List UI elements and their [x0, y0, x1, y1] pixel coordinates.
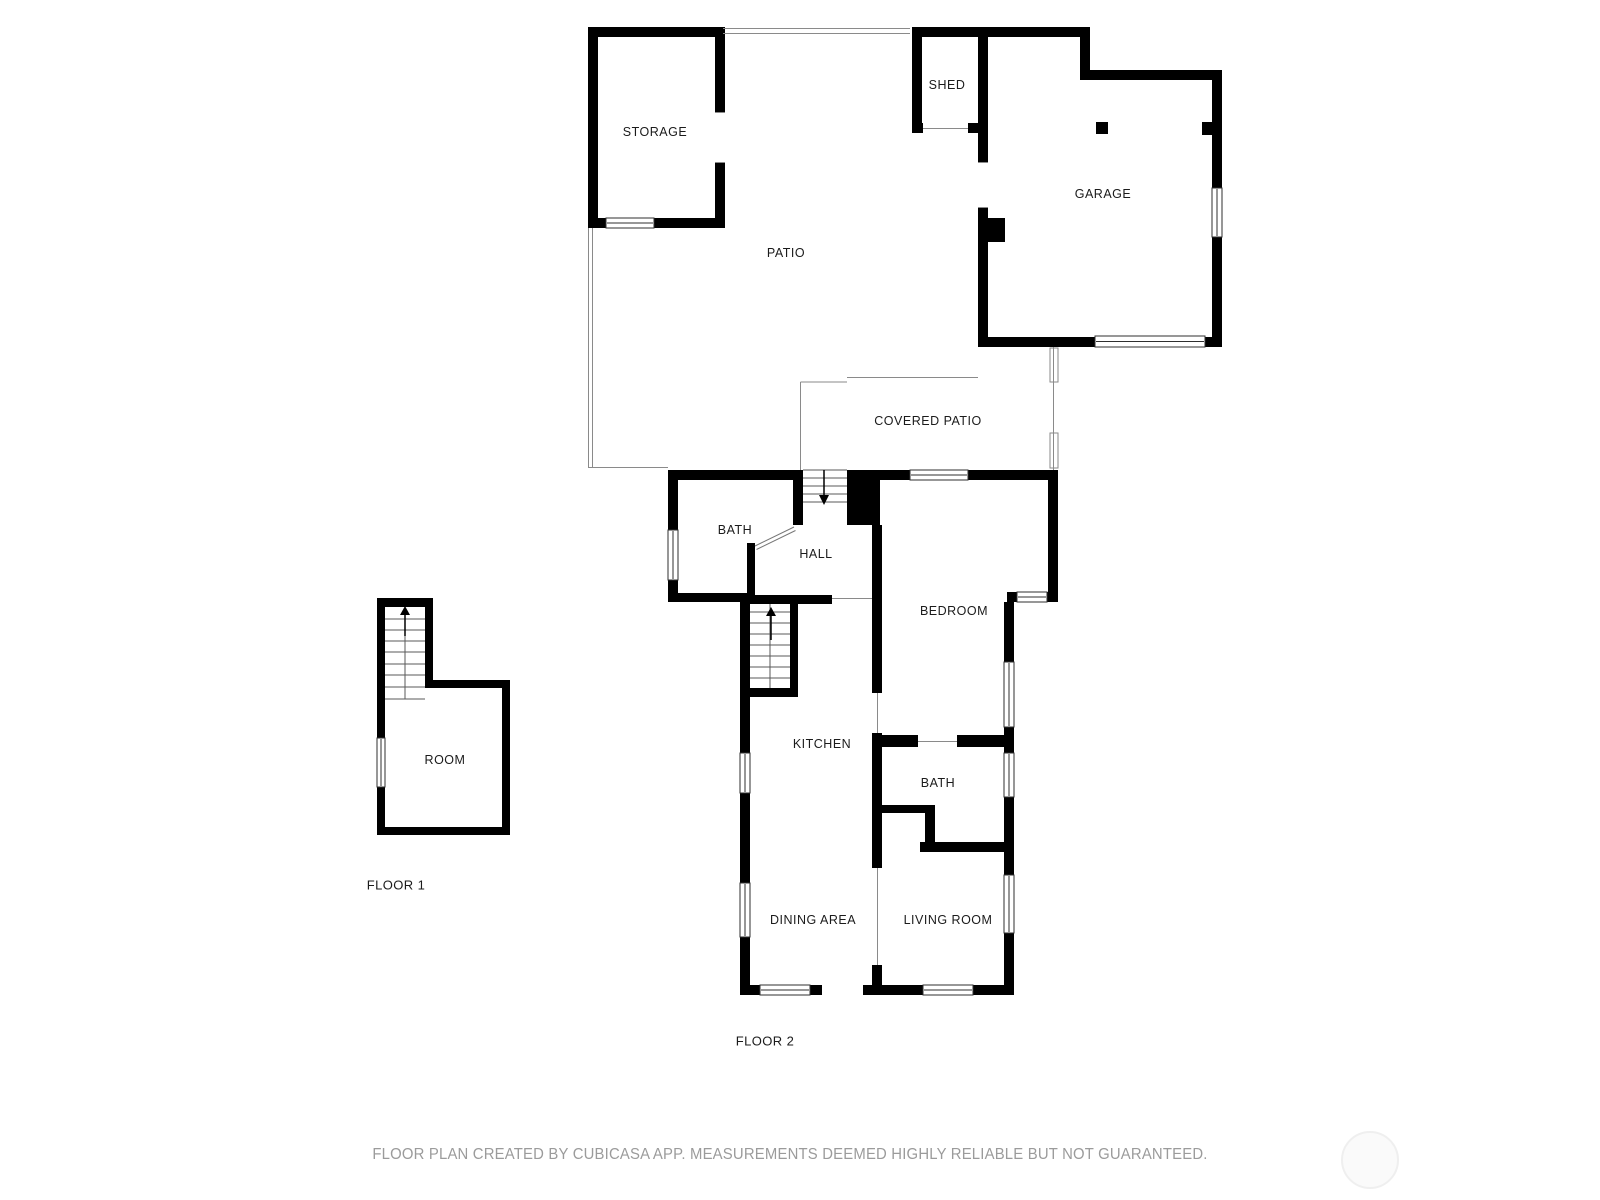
room-label-garage: GARAGE [1075, 187, 1132, 201]
room-label-bedroom: BEDROOM [920, 604, 988, 618]
room-label-bath-upper: BATH [718, 523, 752, 537]
bath-door-swing [755, 527, 796, 550]
floor1-staircase [385, 606, 425, 699]
room-label-kitchen: KITCHEN [793, 737, 851, 751]
room-label-storage: STORAGE [623, 125, 687, 139]
stairs-up-arrow-icon [400, 606, 410, 615]
room-label-patio: PATIO [767, 246, 805, 260]
disclaimer-text: FLOOR PLAN CREATED BY CUBICASA APP. MEAS… [55, 1146, 1524, 1164]
floor1-walls [377, 598, 510, 835]
room-label-shed: SHED [929, 78, 966, 92]
room-label-covered-patio: COVERED PATIO [874, 414, 981, 428]
room-label-hall: HALL [799, 547, 832, 561]
floor-plan-page: STORAGE SHED GARAGE PATIO COVERED PATIO … [0, 0, 1600, 1200]
stairs-to-covered-patio [803, 470, 847, 505]
floor2-walls [668, 470, 1058, 995]
room-label-bath-lower: BATH [921, 776, 955, 790]
floor2-plan [668, 470, 1058, 995]
floor2-caption: FLOOR 2 [736, 1034, 794, 1049]
watermark-circle [1341, 1131, 1399, 1189]
floor1-plan [377, 598, 510, 835]
outdoor-structures [588, 27, 1222, 507]
floor-plan-drawing [0, 0, 1600, 1200]
room-label-living-room: LIVING ROOM [904, 913, 993, 927]
stairs-down-arrow-icon [819, 495, 829, 505]
floor2-staircase [750, 604, 790, 688]
room-label-room: ROOM [425, 753, 466, 767]
room-label-dining-area: DINING AREA [770, 913, 856, 927]
floor1-caption: FLOOR 1 [367, 878, 425, 893]
windows [377, 188, 1222, 995]
window-centre-lines [381, 189, 1217, 990]
